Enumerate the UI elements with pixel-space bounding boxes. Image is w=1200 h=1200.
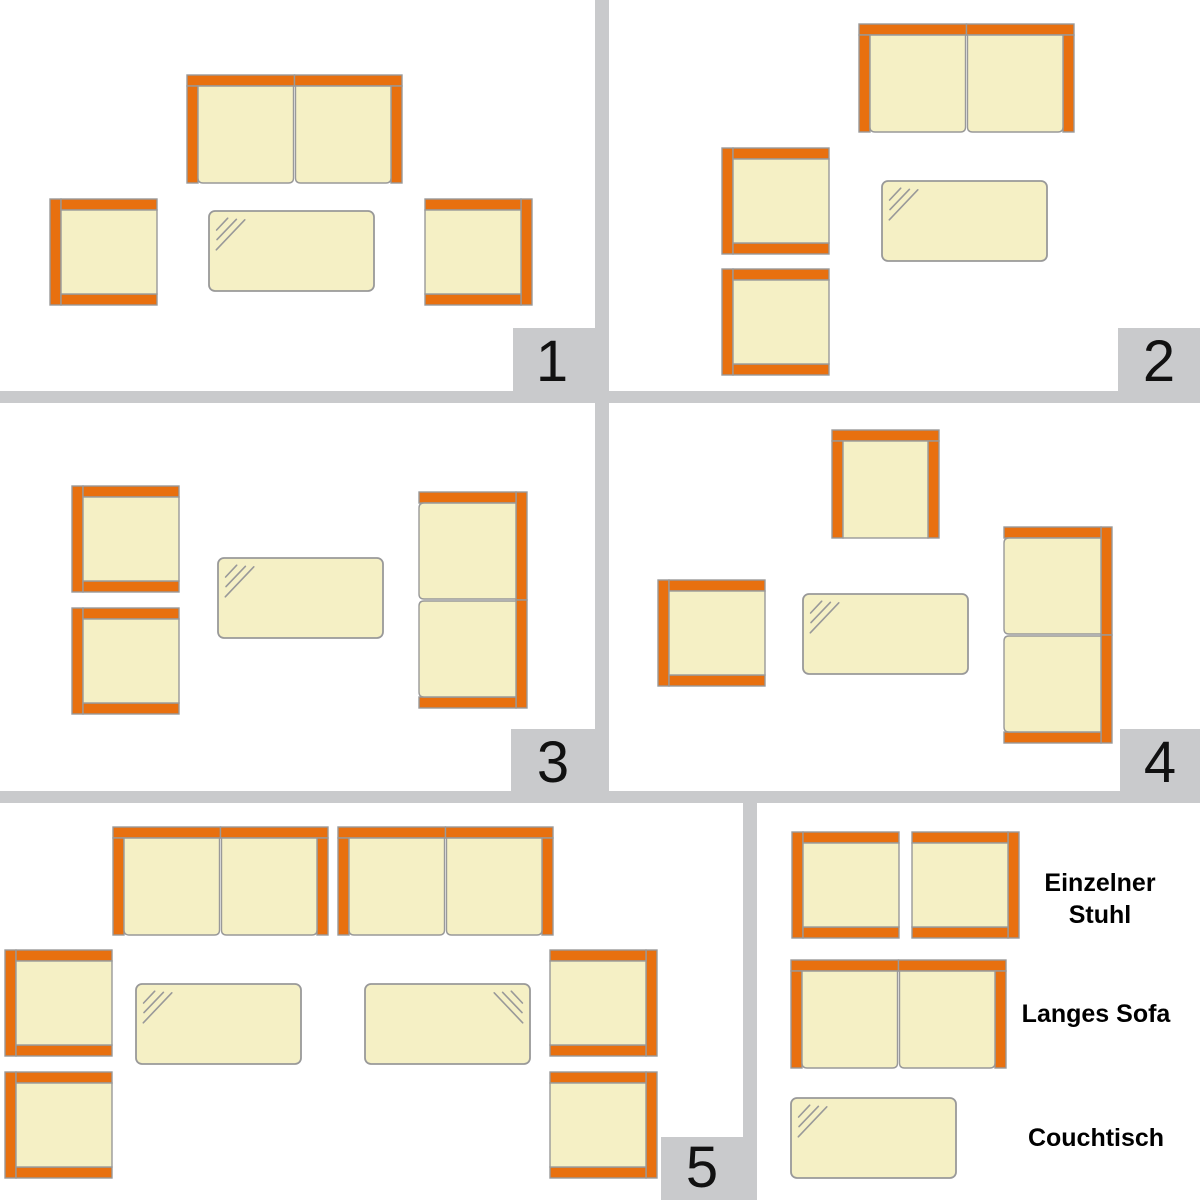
svg-text:1: 1 bbox=[536, 329, 568, 394]
svg-text:3: 3 bbox=[537, 730, 569, 795]
svg-text:Langes Sofa: Langes Sofa bbox=[1022, 1000, 1172, 1028]
svg-text:Einzelner: Einzelner bbox=[1044, 869, 1155, 897]
svg-text:2: 2 bbox=[1143, 329, 1175, 394]
svg-text:Couchtisch: Couchtisch bbox=[1028, 1124, 1164, 1152]
svg-text:5: 5 bbox=[686, 1135, 718, 1200]
svg-text:Stuhl: Stuhl bbox=[1069, 901, 1132, 929]
svg-text:4: 4 bbox=[1144, 730, 1176, 795]
